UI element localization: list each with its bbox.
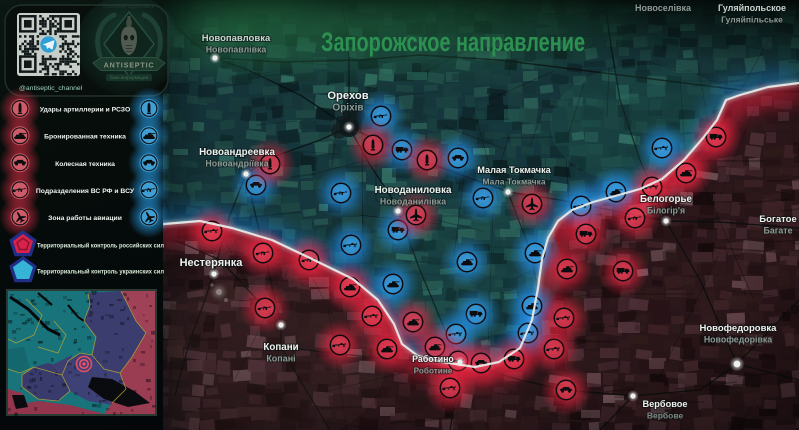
svg-text:Бронированная техника: Бронированная техника <box>44 134 126 141</box>
svg-text:Территориальный контроль росси: Территориальный контроль российских сил <box>37 243 164 250</box>
svg-text:Білогір'я: Білогір'я <box>647 206 685 216</box>
svg-text:Орехов: Орехов <box>327 90 368 102</box>
svg-text:Работино: Работино <box>412 354 454 364</box>
svg-text:ANTISEPTIC: ANTISEPTIC <box>104 61 155 70</box>
svg-text:СОХРАНИ ЗДОРОВЬЕ: СОХРАНИ ЗДОРОВЬЕ <box>103 4 155 9</box>
svg-text:Копані: Копані <box>266 354 295 364</box>
svg-text:Богатое: Богатое <box>759 214 797 225</box>
svg-text:Малая Токмачка: Малая Токмачка <box>477 165 551 175</box>
svg-text:Гуляйпільське: Гуляйпільське <box>721 15 783 25</box>
svg-text:Территориальный контроль украи: Территориальный контроль украинских сил <box>37 269 164 276</box>
svg-text:Новоандріївка: Новоандріївка <box>205 159 268 169</box>
svg-text:Нестерянка: Нестерянка <box>180 257 244 269</box>
svg-text:Вербовое: Вербовое <box>643 399 688 409</box>
svg-text:Новоселівка: Новоселівка <box>635 3 692 13</box>
svg-text:Новоандреевка: Новоандреевка <box>199 147 275 158</box>
svg-text:Гуляйпольское: Гуляйпольское <box>718 3 786 13</box>
svg-text:Мала Токмачка: Мала Токмачка <box>482 177 545 187</box>
svg-text:Запорожское направление: Запорожское направление <box>321 27 585 57</box>
svg-text:Роботине: Роботине <box>414 366 453 376</box>
svg-text:Вербове: Вербове <box>647 411 684 421</box>
svg-text:Новоданилівка: Новоданилівка <box>380 197 446 207</box>
svg-text:банк информации: банк информации <box>110 75 149 80</box>
svg-text:Новофедоровка: Новофедоровка <box>700 323 778 334</box>
svg-text:Новоданиловка: Новоданиловка <box>375 185 452 196</box>
svg-text:Оріхів: Оріхів <box>332 103 363 114</box>
svg-text:Новопавлівка: Новопавлівка <box>206 45 267 55</box>
svg-text:Багате: Багате <box>764 226 793 236</box>
svg-text:Копани: Копани <box>263 342 298 353</box>
svg-text:Подразделения ВС РФ и ВСУ: Подразделения ВС РФ и ВСУ <box>36 188 135 195</box>
svg-text:Удары артиллерии и РСЗО: Удары артиллерии и РСЗО <box>40 107 131 114</box>
svg-text:Белогорье: Белогорье <box>640 194 693 205</box>
svg-text:Колесная техника: Колесная техника <box>55 161 115 168</box>
svg-text:Новофедорівка: Новофедорівка <box>704 335 772 345</box>
svg-text:Зона работы авиации: Зона работы авиации <box>48 214 122 222</box>
svg-text:Новопавловка: Новопавловка <box>202 33 271 44</box>
